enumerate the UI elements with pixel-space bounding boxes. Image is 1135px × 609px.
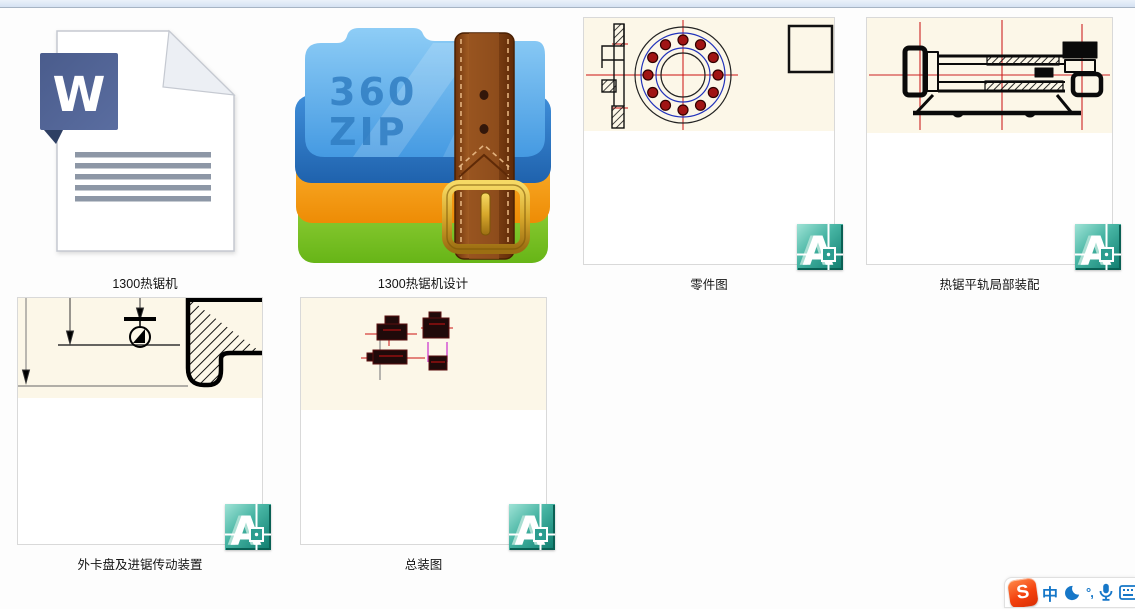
file-item-dwg-rail-assembly[interactable]: A A 热锯平轨局部装配 (866, 17, 1113, 265)
dwg-preview-rail (867, 18, 1112, 133)
window-toolbar-edge (0, 0, 1135, 8)
dwg-preview-chuck (18, 298, 262, 398)
sogou-logo[interactable]: S (1007, 577, 1039, 608)
dwg-preview-assembly (301, 298, 546, 410)
file-label[interactable]: 总装图 (300, 554, 547, 570)
voice-input-mic-icon[interactable] (1098, 583, 1114, 602)
file-label[interactable]: 1300热锯机设计 (293, 273, 553, 289)
file-label[interactable]: 热锯平轨局部装配 (866, 274, 1113, 290)
dwg-preview-parts (584, 18, 834, 131)
autocad-overlay-icon: A A (225, 504, 271, 550)
autocad-overlay-icon: A A (509, 504, 555, 550)
night-mode-moon-icon[interactable] (1063, 584, 1081, 602)
zip-overlay-zip: ZIP (329, 110, 408, 154)
file-item-dwg-general-assembly[interactable]: A A 总装图 (300, 297, 547, 545)
word-document-icon: W (36, 28, 240, 268)
file-label[interactable]: 1300热锯机 (33, 273, 257, 289)
explorer-folder-view: W 1300热锯机 (0, 0, 1135, 609)
autocad-overlay-icon: A A (797, 224, 843, 270)
sogou-ime-toolbar: S 中 °, (1004, 577, 1135, 608)
file-item-dwg-parts[interactable]: A A 零件图 (583, 17, 835, 265)
360zip-archive-icon: 360 ZIP (293, 25, 553, 265)
word-w-glyph: W (53, 67, 106, 123)
file-item-dwg-chuck-drive[interactable]: A A 外卡盘及进锯传动装置 (17, 297, 263, 545)
file-label[interactable]: 外卡盘及进锯传动装置 (17, 554, 263, 570)
chinese-english-toggle[interactable]: 中 (1042, 581, 1058, 605)
autocad-overlay-icon: A A (1075, 224, 1121, 270)
file-label[interactable]: 零件图 (583, 274, 835, 290)
virtual-keyboard-icon[interactable] (1119, 585, 1135, 600)
punctuation-mode-icon[interactable]: °, (1086, 585, 1093, 600)
zip-overlay-360: 360 (329, 70, 417, 114)
